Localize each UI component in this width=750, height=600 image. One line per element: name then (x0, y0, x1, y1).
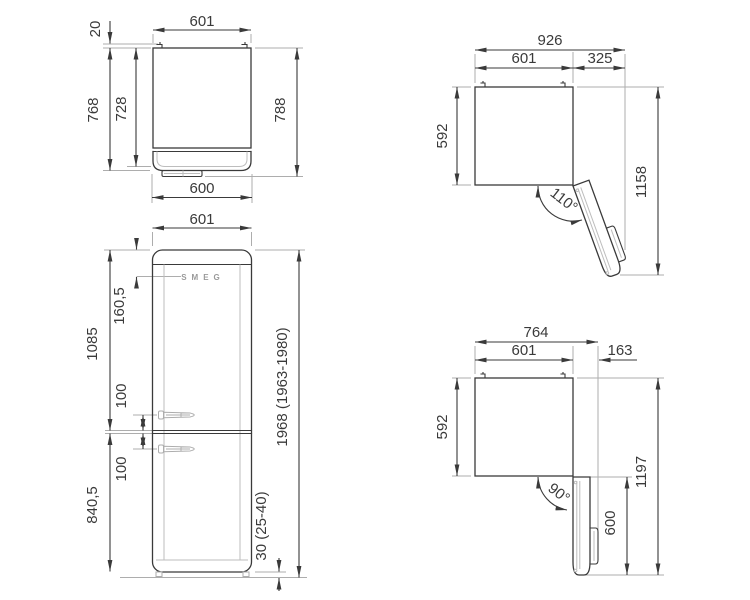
handle-upper (159, 411, 195, 419)
dim-handle-above: 100 (113, 383, 130, 408)
dim-bottom-section: 840,5 (84, 486, 101, 524)
dim-body-width-90: 601 (511, 342, 536, 359)
dim-top-width: 601 (189, 13, 214, 30)
dim-total-width-90: 764 (523, 324, 548, 341)
dim-top-to-logo: 160,5 (111, 287, 128, 325)
dim-angle-90: 90° (545, 480, 573, 507)
view-front: SMEG 601 160,5 1085 100 100 840,5 1968 (… (84, 211, 307, 591)
brand-logo: SMEG (181, 273, 225, 282)
fridge-body-90 (475, 373, 573, 477)
dim-hinge-offset: 20 (87, 21, 104, 38)
dim-handle-below: 100 (113, 456, 130, 481)
dim-total-depth-90: 1197 (633, 456, 650, 488)
dim-total-depth-110: 1158 (633, 166, 650, 198)
dim-door-projection-90: 163 (607, 342, 632, 359)
view-top-closed: 601 20 768 728 788 600 (85, 13, 303, 203)
dim-body-depth-110: 592 (434, 123, 451, 148)
dim-door-length-90: 600 (602, 510, 619, 535)
dim-depth-total: 788 (272, 97, 289, 122)
view-open-110: 110° 926 601 325 592 1158 (434, 32, 664, 278)
fridge-body-front: SMEG (153, 250, 252, 577)
dim-door-projection-110: 325 (587, 50, 612, 67)
dim-top-section: 1085 (84, 327, 101, 360)
foot-left (156, 572, 162, 577)
dim-feet-height: 30 (25-40) (253, 491, 270, 560)
dim-total-width-110: 926 (537, 32, 562, 49)
dimension-drawing: 601 20 768 728 788 600 (0, 0, 750, 600)
drawing-canvas: 601 20 768 728 788 600 (0, 0, 750, 600)
foot-right (243, 572, 249, 577)
view-open-90: 90° 764 601 163 592 1197 600 (434, 324, 664, 575)
handle-lower (159, 445, 195, 453)
extension-lines (452, 52, 664, 275)
open-door-90 (573, 477, 598, 575)
dim-depth-with-door: 768 (85, 97, 102, 122)
dim-depth-body: 728 (113, 96, 130, 121)
dim-body-depth-90: 592 (434, 414, 451, 439)
dim-door-width: 600 (189, 180, 214, 197)
dim-front-width: 601 (189, 211, 214, 228)
open-door-110 (573, 177, 630, 278)
dim-body-width-110: 601 (511, 50, 536, 67)
fridge-body-top (153, 43, 251, 177)
door-handle-top (162, 171, 202, 177)
dim-total-height: 1968 (1963-1980) (274, 327, 291, 446)
fridge-body-110 (475, 82, 573, 186)
dim-angle-110: 110° (547, 185, 581, 217)
